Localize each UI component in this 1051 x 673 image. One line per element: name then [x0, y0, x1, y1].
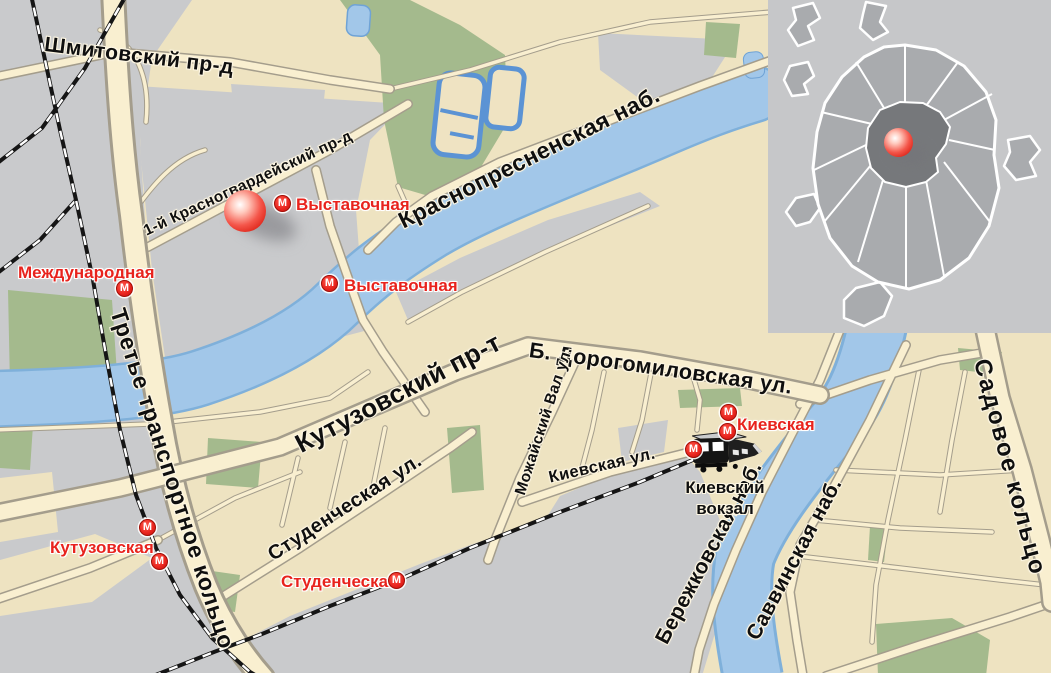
station-label-kutuzovskaya: Кутузовская [50, 538, 154, 558]
metro-icon: М [139, 519, 156, 536]
station-label-studencheskaya: Студенческая [281, 572, 398, 592]
metro-icon: М [388, 572, 405, 589]
inset-map [768, 0, 1051, 333]
metro-icon: М [321, 275, 338, 292]
kiev-terminal-line1: Киевский [660, 477, 790, 498]
station-label-vystavochnaya-1: Выставочная [296, 195, 410, 215]
location-marker [224, 190, 266, 232]
kiev-terminal-line2: вокзал [660, 498, 790, 519]
station-label-vystavochnaya-2: Выставочная [344, 276, 458, 296]
metro-icon: М [685, 441, 702, 458]
inset-location-marker [884, 128, 913, 157]
map-canvas[interactable]: М М М М М М М М М Шмитовский пр-д 1-й Кр… [0, 0, 1051, 673]
metro-icon: М [151, 553, 168, 570]
metro-icon: М [720, 404, 737, 421]
map-graphics [0, 0, 1051, 673]
station-label-mezhdunarodnaya: Международная [18, 263, 155, 283]
kiev-terminal-label: Киевский вокзал [660, 477, 790, 519]
metro-icon: М [719, 423, 736, 440]
metro-icon: М [274, 195, 291, 212]
metro-icon: М [116, 280, 133, 297]
